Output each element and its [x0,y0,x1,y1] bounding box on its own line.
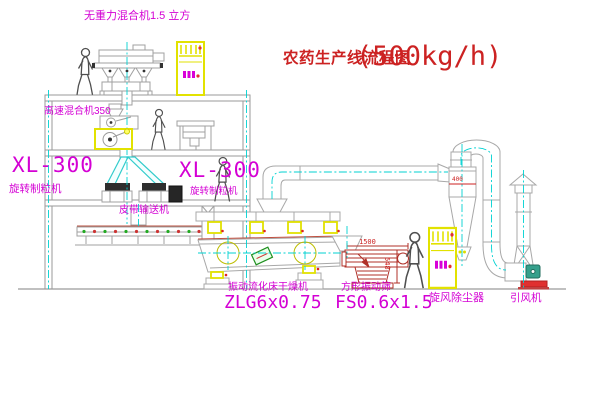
y-chute [107,157,164,184]
control-cabinet-top [177,42,204,95]
person-figure-3 [215,157,230,201]
down-pipe-elbow [483,242,508,278]
control-cabinet-ground [429,228,456,288]
platform-frame [177,121,214,150]
person-figure-1 [77,49,93,95]
exhaust-stack [510,174,536,271]
granulator-right [139,183,169,202]
electrical-panel [169,186,182,202]
high-speed-mixer-yellow-box [95,129,132,149]
drawing-canvas [0,0,600,403]
person-figure-2 [152,109,165,149]
belt-conveyor [75,226,206,245]
cad-process-flow-drawing: 无重力混合机1.5 立方 高速混合机350 XL-300 旋转制粒机 XL-30… [0,0,600,403]
vibrating-sieve [332,236,409,288]
induced-draft-fan [505,263,549,290]
granulator-left [102,183,132,202]
